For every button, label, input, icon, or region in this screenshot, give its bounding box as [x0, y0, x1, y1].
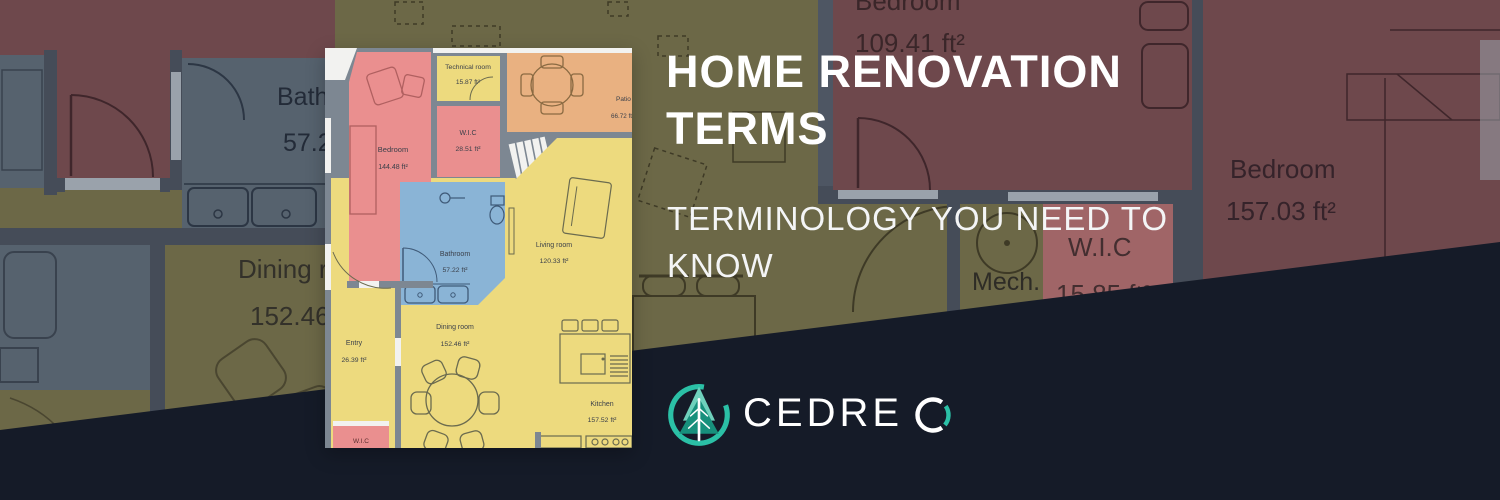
room-label-wic: W.I.C — [459, 130, 476, 137]
room-label-wic-bottom: W.I.C — [353, 438, 369, 445]
room-label-technical: Technical room — [445, 64, 491, 71]
room-area-dining: 152.46 ft² — [441, 341, 470, 348]
room-area-technical: 15.87 ft² — [456, 79, 481, 86]
page-subtitle: TERMINOLOGY YOU NEED TO KNOW — [667, 196, 1168, 290]
room-area-patio: 66.72 ft² — [611, 113, 632, 120]
title-line-2: TERMS — [666, 101, 1122, 158]
room-area-living: 120.33 ft² — [540, 258, 569, 265]
room-area-wic: 28.51 ft² — [456, 146, 482, 153]
logo-letter-o-icon — [914, 396, 952, 434]
subtitle-line-1: TERMINOLOGY YOU NEED TO — [667, 196, 1168, 243]
hero-banner: Bathroom 57.22 ft² Dining room 152.46 ft… — [0, 0, 1500, 500]
room-label-bathroom: Bathroom — [440, 251, 471, 258]
page-title: HOME RENOVATION TERMS — [666, 44, 1122, 157]
subtitle-line-2: KNOW — [667, 243, 1168, 290]
tree-icon — [679, 387, 719, 442]
room-area-entry: 26.39 ft² — [342, 357, 368, 364]
room-label-patio: Patio — [616, 96, 631, 103]
bg-label-bedroom-top: Bedroom — [855, 0, 961, 16]
room-label-bedroom: Bedroom — [378, 145, 408, 154]
room-area-bathroom: 57.22 ft² — [443, 267, 469, 274]
cedreo-logo: CEDRE — [666, 378, 952, 450]
logo-wordmark: CEDRE — [743, 393, 903, 433]
room-label-living: Living room — [536, 242, 572, 249]
bg-label-bedroom-right-area: 157.03 ft² — [1226, 196, 1336, 226]
floorplan-card: Bedroom 144.48 ft² Technical room 15.87 … — [325, 48, 632, 448]
room-area-bedroom: 144.48 ft² — [378, 164, 408, 171]
room-label-dining: Dining room — [436, 324, 474, 331]
bg-label-bedroom-right: Bedroom — [1230, 154, 1336, 184]
room-label-entry: Entry — [346, 340, 363, 347]
room-label-kitchen: Kitchen — [590, 401, 613, 408]
room-area-kitchen: 157.52 ft² — [588, 417, 617, 424]
title-line-1: HOME RENOVATION — [666, 44, 1122, 101]
cedreo-logo-mark — [666, 378, 732, 450]
